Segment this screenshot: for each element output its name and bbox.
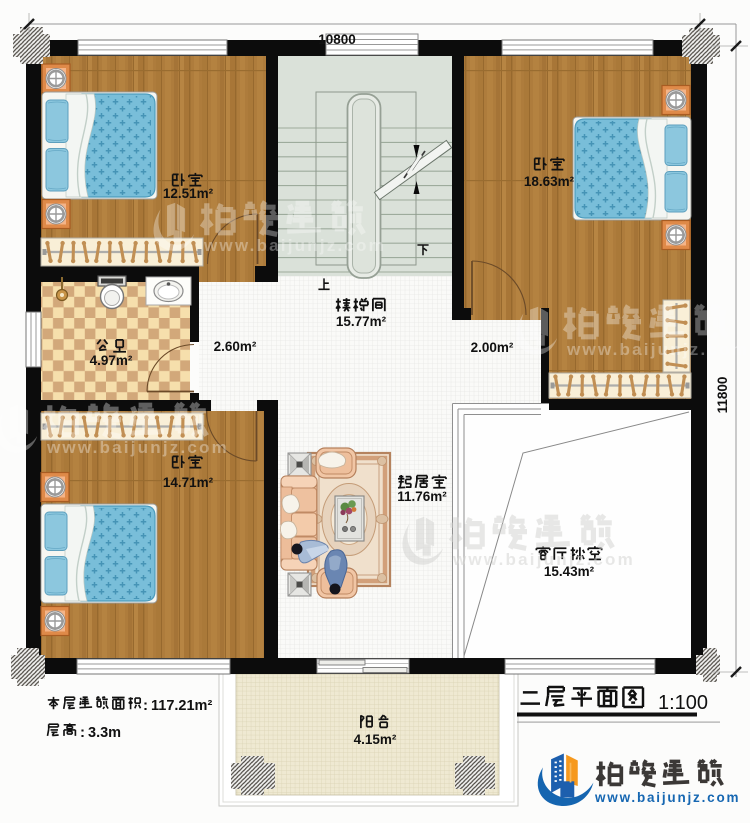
- svg-text:2.00m²: 2.00m²: [471, 340, 514, 355]
- svg-text:18.63m²: 18.63m²: [524, 174, 575, 189]
- svg-text:www.baijunjz.com: www.baijunjz.com: [452, 550, 635, 569]
- svg-text::: :: [80, 724, 85, 741]
- svg-text:1:100: 1:100: [658, 692, 708, 714]
- svg-text:11.76m²: 11.76m²: [397, 489, 447, 504]
- svg-text:11800: 11800: [715, 377, 730, 414]
- svg-text:117.21m²: 117.21m²: [151, 698, 212, 714]
- svg-text:www.baijunjz.com: www.baijunjz.com: [46, 438, 229, 457]
- svg-text:10800: 10800: [318, 32, 356, 47]
- svg-text:www.baijunjz.com: www.baijunjz.com: [566, 340, 749, 359]
- svg-text:4.97m²: 4.97m²: [90, 353, 133, 368]
- svg-text:3.3m: 3.3m: [88, 725, 121, 741]
- svg-text:2.60m²: 2.60m²: [214, 339, 257, 354]
- svg-text:15.77m²: 15.77m²: [336, 314, 387, 329]
- svg-text:12.51m²: 12.51m²: [163, 186, 214, 201]
- svg-text:www.baijunjz.com: www.baijunjz.com: [594, 790, 740, 805]
- svg-text:www.baijunjz.com: www.baijunjz.com: [203, 236, 386, 255]
- svg-text:14.71m²: 14.71m²: [163, 475, 214, 490]
- svg-text::: :: [143, 697, 148, 714]
- svg-text:4.15m²: 4.15m²: [354, 732, 397, 747]
